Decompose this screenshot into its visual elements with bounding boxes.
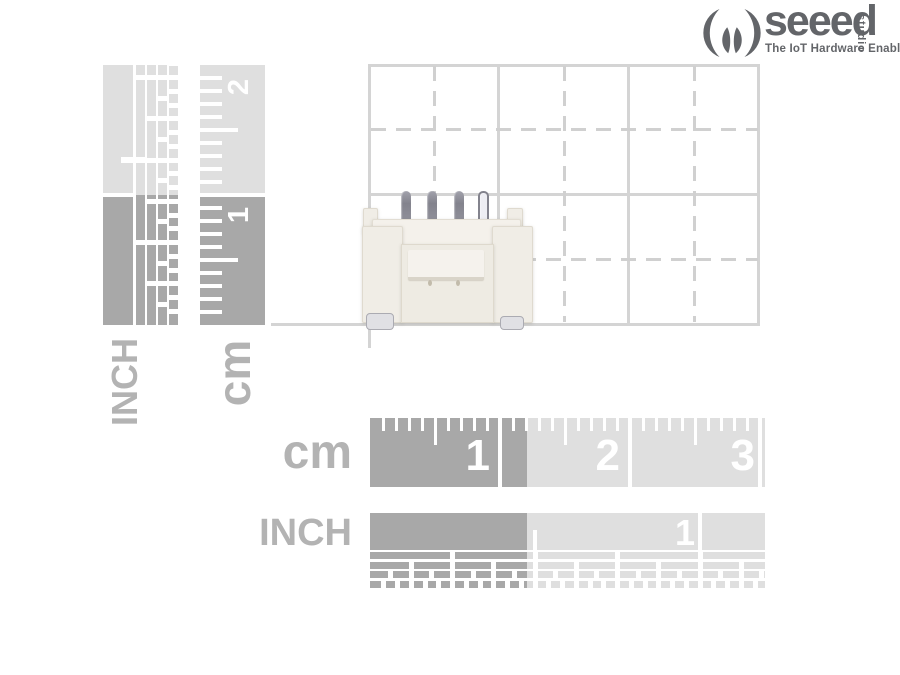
ruler-inch-sub-segment bbox=[496, 571, 512, 578]
ruler-mm-tick bbox=[512, 418, 515, 431]
ruler-inch-sub-segment bbox=[147, 163, 156, 196]
ruler-mm-tick bbox=[655, 418, 658, 431]
grid-dashed-v bbox=[563, 66, 566, 322]
ruler-inch-sub-segment bbox=[169, 66, 178, 75]
ruler-inch-sub-segment bbox=[147, 80, 156, 116]
ruler-mm-tick bbox=[200, 76, 222, 80]
connector-latch bbox=[408, 250, 484, 280]
ruler-inch-sub-segment bbox=[517, 571, 527, 578]
ruler-mm-tick bbox=[681, 418, 684, 431]
ruler-inch-sub-segment bbox=[744, 581, 753, 588]
ruler-inch-sub-segment bbox=[538, 581, 547, 588]
ruler-inch-sub-segment bbox=[414, 571, 430, 578]
ruler-inch-sub-segment bbox=[147, 195, 156, 199]
ruler-inch-sub-segment bbox=[620, 581, 629, 588]
ruler-mm-tick bbox=[421, 418, 424, 431]
grid-dashed-h bbox=[371, 128, 758, 131]
ruler-mm-tick bbox=[200, 180, 222, 184]
ruler-left-cm-number: 2 bbox=[224, 70, 254, 104]
ruler-inch-sub-segment bbox=[158, 195, 167, 199]
ruler-inch-sub-segment bbox=[730, 581, 739, 588]
ruler-inch-sub-segment bbox=[648, 581, 657, 588]
ruler-mm-tick bbox=[382, 418, 385, 431]
ruler-inch-sub-segment bbox=[455, 552, 527, 559]
ruler-inch-sub-segment bbox=[455, 562, 491, 569]
ruler-inch-sub-segment bbox=[136, 65, 145, 75]
ruler-inch-sub-segment bbox=[527, 552, 533, 559]
ruler-inch-sub-segment bbox=[169, 286, 178, 295]
ruler-inch-sub-segment bbox=[158, 142, 167, 158]
ruler-inch-separator bbox=[698, 513, 702, 550]
ruler-inch-sub-segment bbox=[744, 562, 765, 569]
ruler-bottom-cm-number: 1 bbox=[430, 418, 490, 483]
ruler-bottom-inch-label: INCH bbox=[222, 512, 352, 555]
ruler-inch-sub-segment bbox=[703, 581, 712, 588]
connector-hole bbox=[456, 280, 460, 286]
ruler-inch-sub-segment bbox=[158, 245, 167, 261]
ruler-inch-sub-segment bbox=[393, 571, 409, 578]
ruler-mm-tick bbox=[200, 232, 222, 236]
ruler-inch-sub-segment bbox=[527, 562, 533, 569]
ruler-inch-sub-segment bbox=[434, 571, 450, 578]
ruler-inch-sub-segment bbox=[593, 581, 602, 588]
ruler-left-inch-label: INCH bbox=[107, 322, 143, 442]
ruler-mm-tick bbox=[200, 141, 222, 145]
ruler-inch-sub-segment bbox=[370, 571, 388, 578]
ruler-inch-sub-segment bbox=[620, 562, 656, 569]
ruler-mm-tick bbox=[200, 115, 222, 119]
ruler-inch-sub-segment bbox=[441, 581, 450, 588]
ruler-mm-tick bbox=[642, 418, 645, 431]
ruler-inch-sub-segment bbox=[496, 581, 505, 588]
ruler-inch-sub-segment bbox=[169, 176, 178, 185]
ruler-inch-sub-segment bbox=[527, 581, 533, 588]
ruler-inch-sub-segment bbox=[169, 121, 178, 130]
ruler-inch-sub-segment bbox=[158, 224, 167, 240]
ruler-inch-sub-segment bbox=[723, 571, 739, 578]
ruler-inch-sub-segment bbox=[579, 562, 615, 569]
connector-foot bbox=[500, 316, 524, 330]
ruler-cm-separator bbox=[758, 418, 762, 487]
ruler-inch-sub-segment bbox=[538, 562, 574, 569]
ruler-inch-sub-segment bbox=[758, 581, 766, 588]
ruler-inch-sub-segment bbox=[469, 581, 478, 588]
ruler-inch-sub-segment bbox=[641, 571, 657, 578]
ruler-bottom-cm-number: 3 bbox=[695, 418, 755, 483]
connector-wing-right bbox=[492, 226, 533, 323]
ruler-inch-sub-segment bbox=[158, 101, 167, 117]
ruler-inch-sub-segment bbox=[136, 163, 145, 196]
ruler-mm-tick bbox=[200, 245, 222, 249]
ruler-inch-sub-segment bbox=[169, 163, 178, 172]
ruler-mm-tick bbox=[200, 167, 222, 171]
ruler-inch-sub-segment bbox=[169, 300, 178, 309]
ruler-inch-sub-segment bbox=[169, 135, 178, 144]
ruler-inch-sub-segment bbox=[169, 245, 178, 254]
ruler-inch-sub-segment bbox=[169, 190, 178, 195]
ruler-inch-sub-segment bbox=[370, 581, 381, 588]
ruler-inch-sub-segment bbox=[370, 562, 409, 569]
ruler-inch-sub-segment bbox=[675, 581, 684, 588]
ruler-mm-tick bbox=[200, 284, 222, 288]
ruler-inch-sub-segment bbox=[455, 571, 471, 578]
ruler-inch-sub-segment bbox=[538, 552, 616, 559]
ruler-inch-sub-segment bbox=[634, 581, 643, 588]
ruler-inch-sub-segment bbox=[606, 581, 615, 588]
ruler-inch-sub-segment bbox=[689, 581, 698, 588]
ruler-inch-sub-segment bbox=[414, 581, 423, 588]
ruler-inch-sub-segment bbox=[158, 65, 167, 75]
ruler-inch-sub-segment bbox=[169, 259, 178, 268]
ruler-inch-sub-segment bbox=[565, 581, 574, 588]
ruler-inch-sub-segment bbox=[527, 571, 533, 578]
ruler-product-zone bbox=[103, 197, 133, 325]
ruler-inch-sub-segment bbox=[158, 183, 167, 195]
ruler-inch-sub-segment bbox=[483, 581, 492, 588]
ruler-inch-sub-segment bbox=[661, 581, 670, 588]
ruler-inch-sub-segment bbox=[158, 286, 167, 302]
ruler-inch-sub-segment bbox=[158, 163, 167, 179]
ruler-inch-sub-segment bbox=[620, 552, 698, 559]
ruler-bottom-inch-subrows bbox=[370, 552, 765, 592]
ruler-mm-tick bbox=[200, 154, 222, 158]
ruler-inch-sub-segment bbox=[682, 571, 698, 578]
ruler-inch-sub-segment bbox=[579, 581, 588, 588]
ruler-inch-sub-segment bbox=[169, 80, 178, 89]
ruler-mm-tick bbox=[200, 258, 238, 262]
connector-pin bbox=[401, 191, 411, 222]
connector-hole bbox=[428, 280, 432, 286]
ruler-inch-sub-segment bbox=[558, 571, 574, 578]
ruler-mm-tick bbox=[200, 206, 222, 210]
logo-tagline: The IoT Hardware Enabler bbox=[765, 43, 900, 55]
ruler-inch-sub-segment bbox=[620, 571, 636, 578]
ruler-inch-sub-segment bbox=[661, 562, 697, 569]
ruler-inch-sub-segment bbox=[169, 218, 178, 227]
ruler-inch-sub-segment bbox=[551, 581, 560, 588]
ruler-left-inch-bar bbox=[103, 65, 133, 325]
ruler-inch-sub-segment bbox=[370, 552, 450, 559]
ruler-product-zone bbox=[370, 513, 527, 550]
ruler-inch-sub-segment bbox=[764, 571, 765, 578]
ruler-inch-sub-segment bbox=[158, 266, 167, 282]
ruler-cm-separator bbox=[103, 193, 133, 197]
ruler-mm-tick bbox=[200, 310, 222, 314]
product-photo-canvas: seeed studio The IoT Hardware Enabler bbox=[0, 0, 900, 675]
ruler-inch-sub-segment bbox=[716, 581, 725, 588]
ruler-half-inch-notch bbox=[533, 530, 537, 550]
ruler-mm-tick bbox=[668, 418, 671, 431]
ruler-bottom-cm-label: cm bbox=[222, 425, 352, 480]
ruler-left-inch-subcolumns bbox=[136, 65, 178, 325]
ruler-inch-sub-segment bbox=[579, 571, 595, 578]
grid-dashed-v bbox=[693, 66, 696, 322]
ruler-half-inch-notch bbox=[121, 157, 146, 163]
ruler-inch-sub-segment bbox=[147, 245, 156, 281]
ruler-inch-sub-segment bbox=[158, 307, 167, 325]
ruler-inch-sub-segment bbox=[400, 581, 409, 588]
ruler-inch-sub-segment bbox=[136, 80, 145, 158]
ruler-mm-tick bbox=[200, 89, 222, 93]
ruler-inch-sub-segment bbox=[599, 571, 615, 578]
ruler-inch-sub-segment bbox=[455, 581, 464, 588]
ruler-inch-sub-segment bbox=[136, 245, 145, 325]
connector-wing-left bbox=[362, 226, 403, 323]
seeed-leaf-icon bbox=[703, 8, 761, 58]
ruler-inch-sub-segment bbox=[428, 581, 437, 588]
ruler-inch-sub-segment bbox=[414, 562, 450, 569]
ruler-mm-tick bbox=[408, 418, 411, 431]
ruler-inch-sub-segment bbox=[703, 552, 766, 559]
ruler-inch-sub-segment bbox=[158, 204, 167, 220]
ruler-inch-sub-segment bbox=[169, 314, 178, 325]
ruler-mm-tick bbox=[200, 102, 222, 106]
seeed-logo: seeed studio The IoT Hardware Enabler bbox=[700, 5, 880, 60]
ruler-mm-tick bbox=[200, 271, 222, 275]
ruler-inch-sub-segment bbox=[147, 121, 156, 157]
ruler-inch-sub-segment bbox=[386, 581, 395, 588]
ruler-mm-tick bbox=[525, 418, 528, 431]
ruler-inch-sub-segment bbox=[169, 94, 178, 103]
ruler-inch-sub-segment bbox=[169, 231, 178, 240]
ruler-bottom-inch-number: 1 bbox=[635, 513, 695, 550]
ruler-inch-sub-segment bbox=[476, 571, 492, 578]
ruler-mm-tick bbox=[551, 418, 554, 431]
ruler-inch-sub-segment bbox=[169, 108, 178, 117]
connector-foot bbox=[366, 313, 394, 330]
ruler-inch-sub-segment bbox=[147, 65, 156, 75]
ruler-bottom-inch-bar bbox=[370, 513, 765, 550]
ruler-inch-sub-segment bbox=[169, 273, 178, 282]
ruler-inch-sub-segment bbox=[169, 204, 178, 213]
ruler-cm-separator bbox=[498, 418, 502, 487]
ruler-inch-sub-segment bbox=[703, 562, 739, 569]
ruler-cm-separator bbox=[628, 418, 632, 487]
ruler-inch-sub-segment bbox=[496, 562, 527, 569]
ruler-inch-sub-segment bbox=[703, 571, 719, 578]
connector-pin bbox=[454, 191, 464, 222]
ruler-inch-sub-segment bbox=[136, 195, 145, 240]
ruler-inch-sub-segment bbox=[169, 149, 178, 158]
ruler-inch-sub-segment bbox=[744, 571, 760, 578]
ruler-inch-sub-segment bbox=[147, 204, 156, 240]
ruler-inch-sub-segment bbox=[169, 195, 178, 199]
ruler-mm-tick bbox=[395, 418, 398, 431]
ruler-left-cm-label: cm bbox=[216, 313, 256, 433]
connector-pin bbox=[427, 191, 437, 222]
ruler-inch-sub-segment bbox=[661, 571, 677, 578]
ruler-inch-sub-segment bbox=[158, 80, 167, 96]
ruler-mm-tick bbox=[538, 418, 541, 431]
ruler-inch-sub-segment bbox=[538, 571, 554, 578]
ruler-left-cm-number: 1 bbox=[224, 198, 254, 232]
ruler-cm-separator bbox=[200, 193, 265, 197]
ruler-inch-sub-segment bbox=[147, 286, 156, 325]
ruler-mm-tick bbox=[200, 128, 238, 132]
ruler-inch-sub-segment bbox=[510, 581, 519, 588]
ruler-mm-tick bbox=[200, 219, 222, 223]
ruler-bottom-cm-number: 2 bbox=[560, 418, 620, 483]
ruler-mm-tick bbox=[200, 297, 222, 301]
ruler-left-cm-bar bbox=[200, 65, 265, 325]
ruler-inch-sub-segment bbox=[158, 121, 167, 137]
